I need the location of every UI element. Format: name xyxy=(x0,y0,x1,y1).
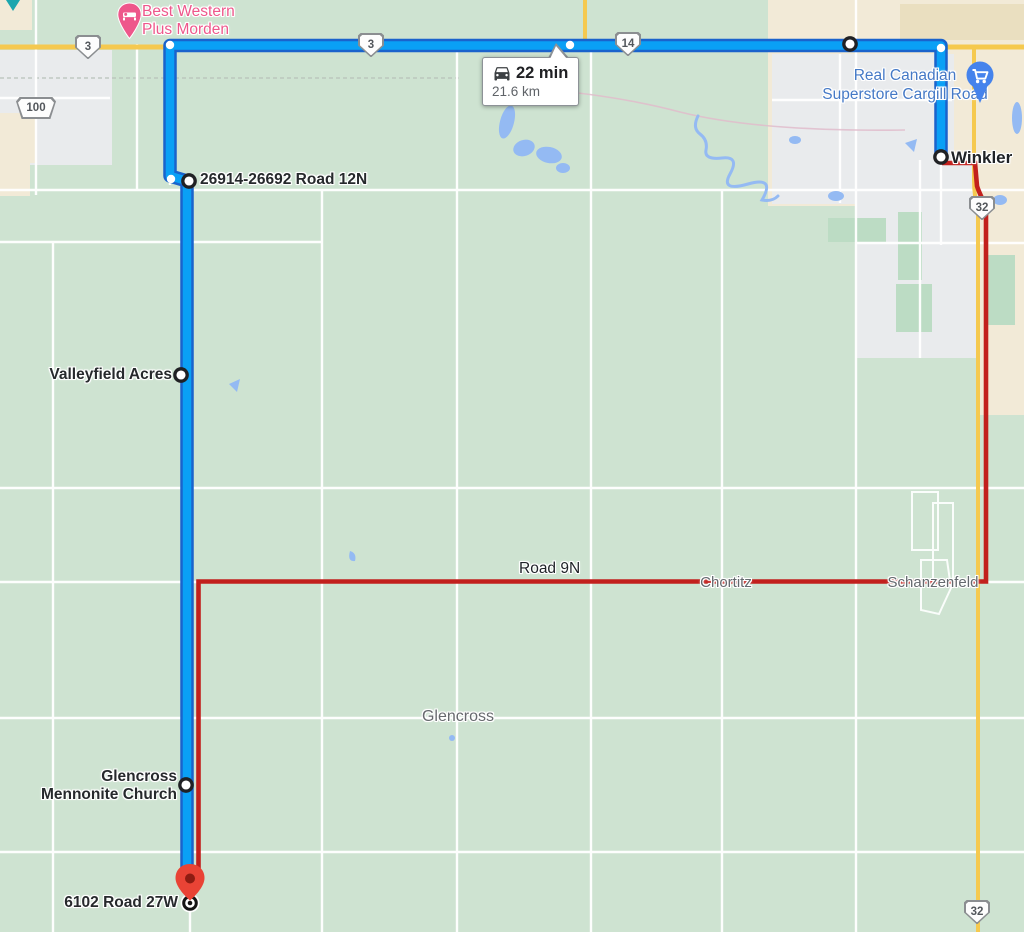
winkler-label[interactable]: Winkler xyxy=(951,148,1012,168)
map-canvas[interactable]: 22 min 21.6 km 3 100 3 14 32 32 Best Wes… xyxy=(0,0,1024,932)
waypoint-church-dot[interactable] xyxy=(180,779,192,791)
glencross-town-label: Glencross xyxy=(422,708,494,726)
waypoint-winkler-dot[interactable] xyxy=(935,151,947,163)
bubble-caret xyxy=(550,46,567,59)
schanzenfeld-label: Schanzenfeld xyxy=(888,574,979,591)
superstore-pin-icon[interactable] xyxy=(964,60,996,104)
route-duration: 22 min xyxy=(516,64,568,83)
glencross-church-label[interactable]: Glencross Mennonite Church xyxy=(41,768,177,804)
road12n-label[interactable]: 26914-26692 Road 12N xyxy=(200,171,367,189)
car-icon xyxy=(492,63,512,83)
superstore-label[interactable]: Real Canadian Superstore Cargill Road xyxy=(822,66,987,104)
chortitz-label: Chortitz xyxy=(700,574,752,591)
highway-shield-100: 100 xyxy=(16,97,56,119)
valleyfield-label[interactable]: Valleyfield Acres xyxy=(49,366,172,384)
route-info-bubble[interactable]: 22 min 21.6 km xyxy=(482,57,579,106)
destination-label[interactable]: 6102 Road 27W xyxy=(64,894,178,912)
road9n-label: Road 9N xyxy=(519,560,580,578)
hotel-label[interactable]: Best Western Plus Morden xyxy=(142,3,235,39)
hotel-pin-icon[interactable] xyxy=(116,2,143,40)
waypoint-valleyfield-dot[interactable] xyxy=(175,369,187,381)
waypoint-dot[interactable] xyxy=(844,38,856,50)
teal-marker-tip-icon xyxy=(4,0,24,12)
waypoint-road12n-dot[interactable] xyxy=(183,175,195,187)
route-distance: 21.6 km xyxy=(492,84,570,99)
